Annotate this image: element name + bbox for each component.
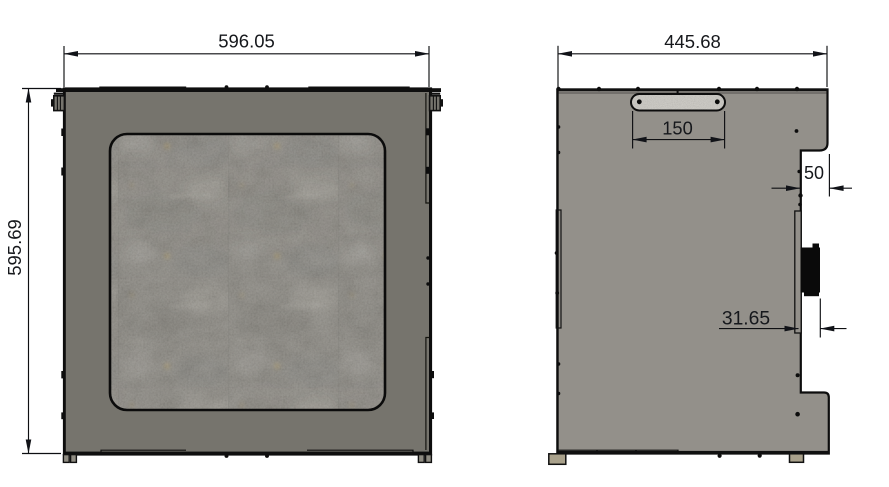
svg-text:150: 150: [662, 118, 693, 139]
svg-text:595.69: 595.69: [4, 219, 25, 276]
svg-text:50: 50: [804, 163, 824, 183]
svg-text:445.68: 445.68: [664, 31, 721, 52]
svg-text:596.05: 596.05: [218, 30, 275, 51]
svg-text:31.65: 31.65: [722, 308, 770, 329]
